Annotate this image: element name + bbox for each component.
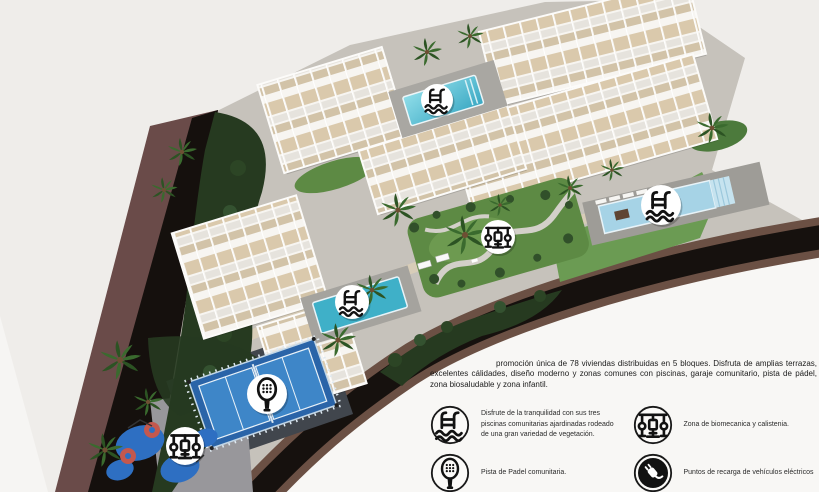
legend-item-text: Zona de biomecanica y calistenia. — [684, 420, 789, 431]
padel-icon — [430, 453, 470, 492]
brochure-page: promoción única de 78 viviendas distribu… — [0, 0, 819, 492]
legend-item-pools: Disfrute de la tranquilidad con sus tres… — [430, 404, 617, 446]
legend-item-ev-charging: Puntos de recarga de vehículos eléctrico… — [633, 452, 819, 492]
legend-item-text: Puntos de recarga de vehículos eléctrico… — [684, 468, 814, 479]
legend-item-text: Disfrute de la tranquilidad con sus tres… — [481, 409, 617, 441]
legend-item-padel: Pista de Padel comunitaria. — [430, 452, 617, 492]
legend-item-text: Pista de Padel comunitaria. — [481, 468, 566, 479]
legend-item-calisthenics: Zona de biomecanica y calistenia. — [633, 404, 819, 446]
promo-description: promoción única de 78 viviendas distribu… — [430, 359, 817, 390]
ev-charger-icon — [633, 453, 673, 492]
legend: Disfrute de la tranquilidad con sus tres… — [430, 404, 819, 492]
calisthenics-icon — [633, 405, 673, 445]
pool-icon — [430, 405, 470, 445]
